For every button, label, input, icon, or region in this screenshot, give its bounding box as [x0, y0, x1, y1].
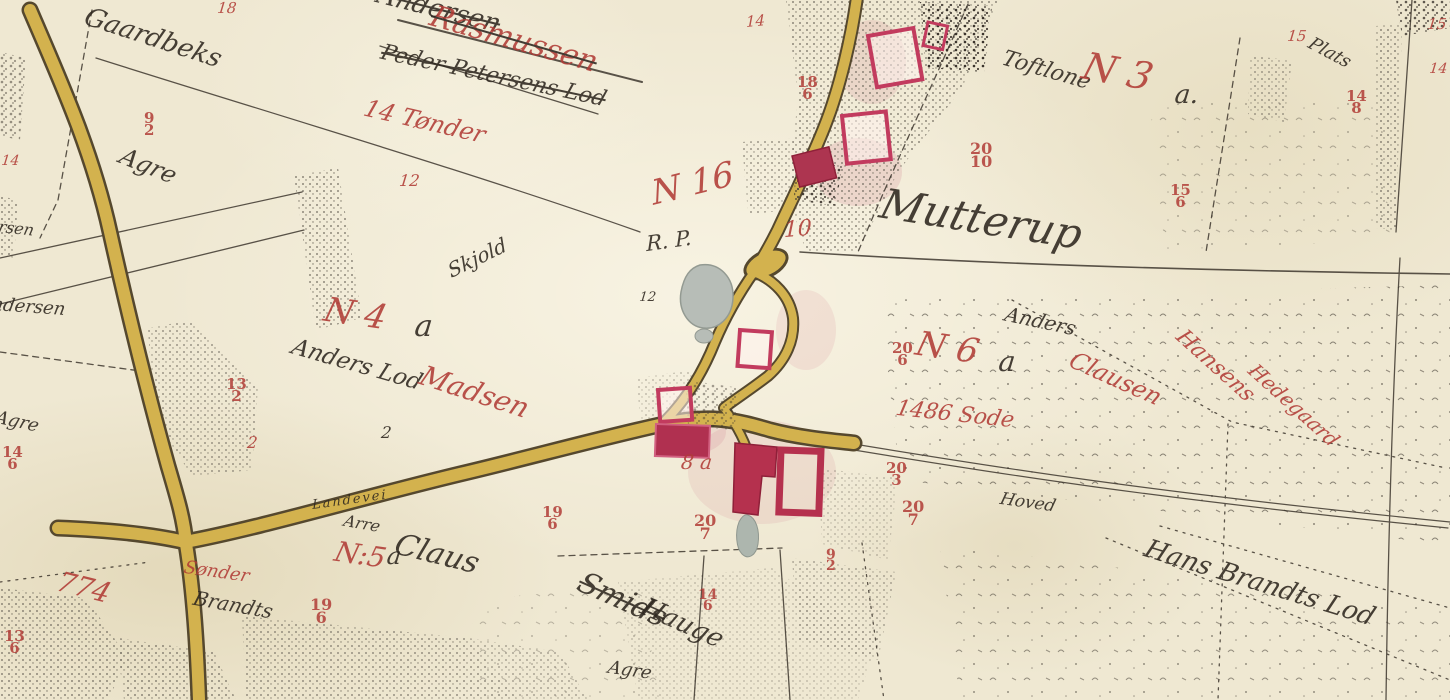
building-outline-4	[658, 388, 692, 422]
map-canvas[interactable]: GaardbeksAgreAndersenPeder Petersens Lod…	[0, 0, 1450, 700]
map-artwork	[0, 0, 1450, 700]
heath-areas	[470, 95, 1450, 700]
building-outline-2	[842, 111, 891, 163]
building-outline-1	[868, 28, 922, 87]
building-solid-2	[655, 424, 710, 458]
building-outline-3	[737, 330, 771, 368]
pond-small	[737, 515, 759, 557]
